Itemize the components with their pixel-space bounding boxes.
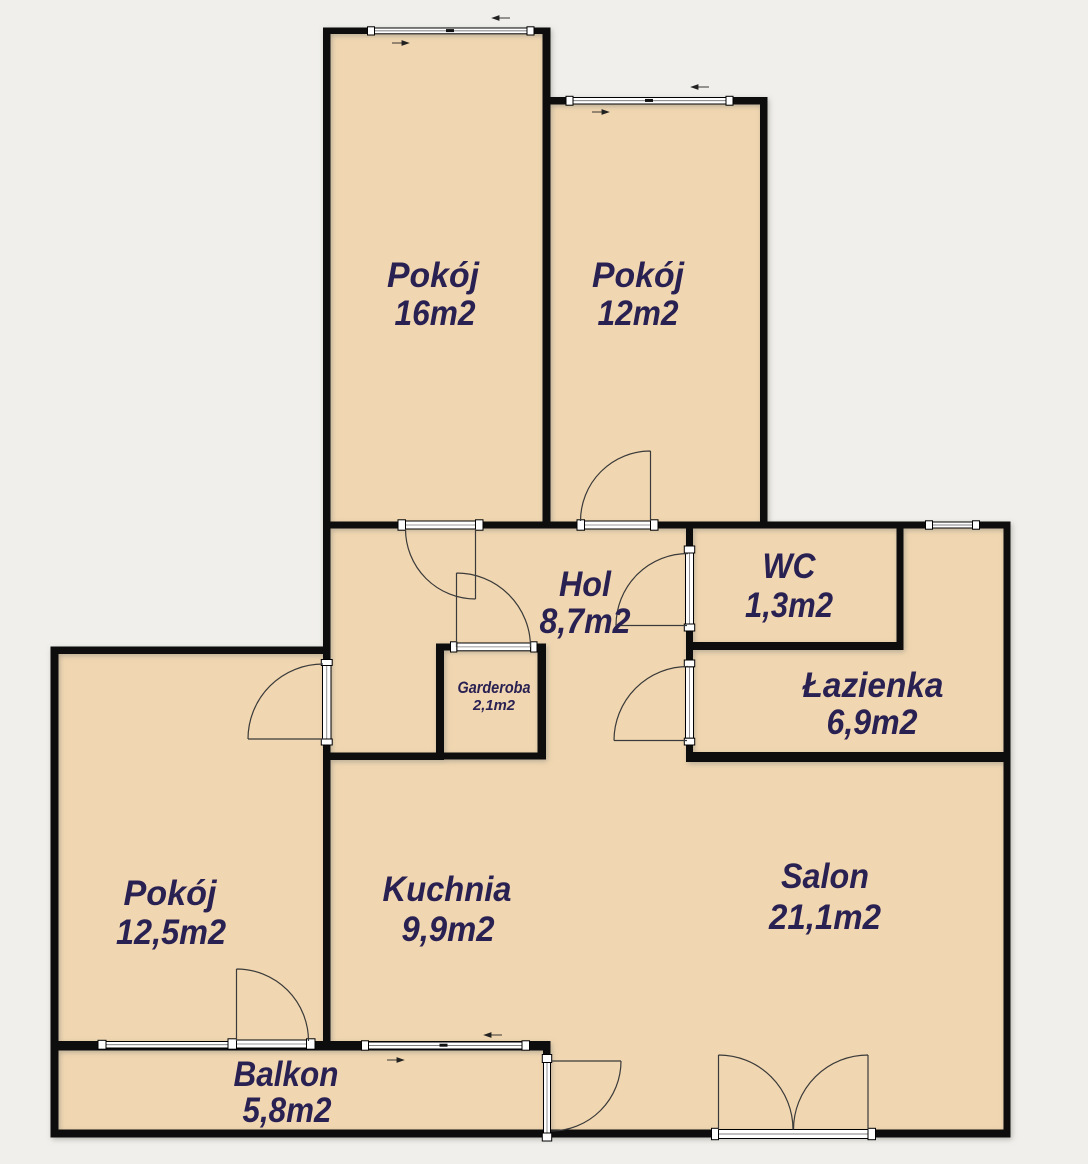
svg-text:Pokój: Pokój [387, 256, 480, 295]
svg-text:Łazienka: Łazienka [802, 666, 944, 705]
svg-text:12,5m2: 12,5m2 [116, 913, 226, 952]
svg-text:16m2: 16m2 [395, 294, 476, 333]
svg-text:Pokój: Pokój [124, 874, 218, 913]
svg-text:Kuchnia: Kuchnia [383, 870, 512, 909]
svg-text:Salon: Salon [781, 857, 869, 896]
svg-text:Pokój: Pokój [592, 256, 685, 295]
svg-text:21,1m2: 21,1m2 [768, 898, 881, 937]
svg-text:WC: WC [763, 547, 817, 586]
svg-text:Hol: Hol [559, 565, 612, 604]
svg-text:8,7m2: 8,7m2 [540, 602, 631, 641]
svg-text:2,1m2: 2,1m2 [472, 697, 516, 714]
svg-text:Garderoba: Garderoba [458, 678, 531, 697]
svg-text:1,3m2: 1,3m2 [745, 586, 833, 625]
svg-text:6,9m2: 6,9m2 [827, 703, 918, 742]
svg-text:12m2: 12m2 [598, 294, 679, 333]
svg-text:5,8m2: 5,8m2 [243, 1091, 332, 1130]
svg-text:Balkon: Balkon [234, 1055, 339, 1094]
svg-text:9,9m2: 9,9m2 [402, 910, 495, 949]
